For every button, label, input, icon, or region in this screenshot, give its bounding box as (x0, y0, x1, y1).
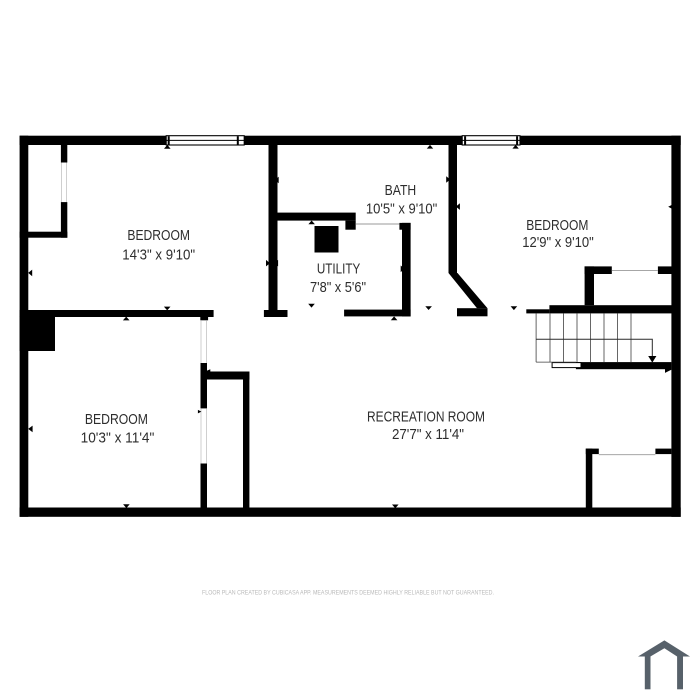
svg-text:27'7" x 11'4": 27'7" x 11'4" (392, 427, 464, 443)
svg-text:14'3" x 9'10": 14'3" x 9'10" (122, 247, 195, 263)
svg-text:FLOOR PLAN CREATED BY CUBICASA: FLOOR PLAN CREATED BY CUBICASA APP. MEAS… (202, 590, 494, 597)
svg-text:UTILITY: UTILITY (317, 262, 361, 278)
svg-text:BEDROOM: BEDROOM (127, 228, 190, 244)
svg-text:BEDROOM: BEDROOM (526, 218, 588, 234)
svg-text:10'5" x 9'10": 10'5" x 9'10" (366, 201, 437, 217)
svg-text:7'8" x 5'6": 7'8" x 5'6" (310, 280, 366, 296)
svg-text:10'3" x 11'4": 10'3" x 11'4" (81, 430, 155, 446)
svg-text:BEDROOM: BEDROOM (85, 412, 148, 428)
svg-text:RECREATION ROOM: RECREATION ROOM (367, 410, 485, 426)
svg-text:BATH: BATH (385, 183, 417, 199)
svg-text:12'9" x 9'10": 12'9" x 9'10" (522, 235, 594, 251)
